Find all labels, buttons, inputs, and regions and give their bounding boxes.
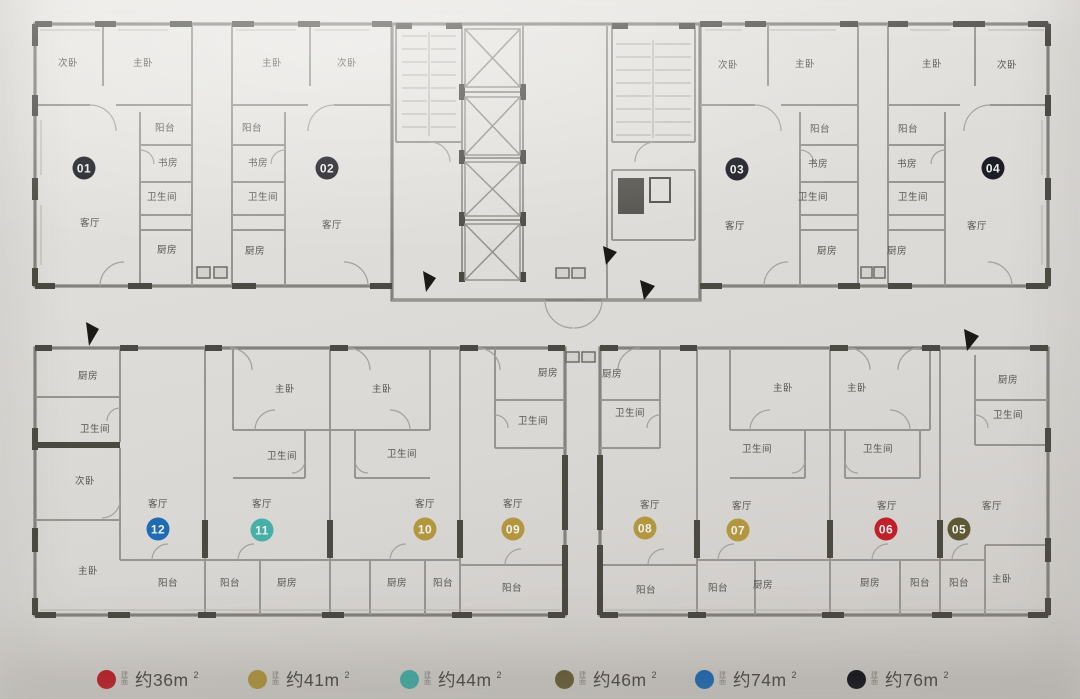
legend-dot [97, 670, 116, 689]
room-label: 次卧 [718, 57, 738, 71]
room-label: 卫生间 [798, 189, 828, 203]
unit-badge: 06 [875, 518, 898, 541]
room-label: 客厅 [252, 496, 272, 510]
legend-sup: 2 [944, 670, 949, 680]
room-label: 阳台 [155, 120, 175, 134]
room-label: 卫生间 [615, 405, 645, 419]
room-label: 阳台 [949, 575, 969, 589]
room-label: 阳台 [636, 582, 656, 596]
legend-item: 建面 约41m2 [248, 667, 350, 692]
legend-dot [555, 670, 574, 689]
room-label: 厨房 [157, 242, 177, 256]
room-label: 客厅 [415, 496, 435, 510]
room-label: 阳台 [910, 575, 930, 589]
legend-dot [400, 670, 419, 689]
room-label: 书房 [248, 155, 268, 169]
unit-badge: 12 [147, 518, 170, 541]
room-label: 次卧 [337, 55, 357, 69]
room-label: 主卧 [133, 55, 153, 69]
room-label: 客厅 [148, 496, 168, 510]
room-label: 客厅 [732, 498, 752, 512]
room-label: 阳台 [708, 580, 728, 594]
room-label: 阳台 [242, 120, 262, 134]
room-label: 主卧 [275, 381, 295, 395]
room-label: 厨房 [538, 365, 558, 379]
legend-item: 建面 约46m2 [555, 667, 657, 692]
room-label: 次卧 [997, 57, 1017, 71]
unit-badge: 02 [316, 157, 339, 180]
legend-item: 建面 约44m2 [400, 667, 502, 692]
room-label: 卫生间 [80, 421, 110, 435]
legend-sup: 2 [194, 670, 199, 680]
legend-sup: 2 [792, 670, 797, 680]
room-label: 卫生间 [993, 407, 1023, 421]
room-label: 书房 [808, 156, 828, 170]
room-label: 主卧 [372, 381, 392, 395]
legend-item: 建面 约74m2 [695, 667, 797, 692]
staircase-left [402, 32, 456, 136]
floorplan-drawing [0, 0, 1080, 699]
room-label: 阳台 [810, 121, 830, 135]
room-label: 厨房 [277, 575, 297, 589]
room-label: 厨房 [817, 243, 837, 257]
legend-area: 约41m [286, 667, 340, 692]
door-swings [90, 105, 1012, 565]
room-label: 厨房 [887, 243, 907, 257]
room-label: 厨房 [753, 577, 773, 591]
room-label: 客厅 [503, 496, 523, 510]
room-label: 客厅 [877, 498, 897, 512]
legend-item: 建面 约76m2 [847, 667, 949, 692]
unit-badge: 07 [727, 519, 750, 542]
room-label: 厨房 [860, 575, 880, 589]
legend-prefix: 建面 [121, 673, 130, 686]
legend-prefix: 建面 [424, 673, 433, 686]
room-label: 卫生间 [742, 441, 772, 455]
room-label: 阳台 [433, 575, 453, 589]
room-label: 主卧 [922, 56, 942, 70]
legend-prefix: 建面 [719, 673, 728, 686]
room-label: 卫生间 [387, 446, 417, 460]
room-label: 卫生间 [898, 189, 928, 203]
room-label: 厨房 [998, 372, 1018, 386]
room-label: 主卧 [78, 563, 98, 577]
legend-prefix: 建面 [871, 673, 880, 686]
room-label: 主卧 [773, 380, 793, 394]
room-label: 厨房 [602, 366, 622, 380]
legend-sup: 2 [497, 670, 502, 680]
room-label: 书房 [897, 156, 917, 170]
room-label: 主卧 [795, 56, 815, 70]
room-label: 厨房 [387, 575, 407, 589]
unit-badge: 03 [726, 158, 749, 181]
room-label: 卫生间 [863, 441, 893, 455]
legend-area: 约46m [593, 667, 647, 692]
unit-badge: 11 [251, 519, 274, 542]
room-label: 卫生间 [147, 189, 177, 203]
legend-item: 建面 约36m2 [97, 667, 199, 692]
elevator-shafts [465, 29, 520, 280]
room-label: 主卧 [847, 380, 867, 394]
room-label: 客厅 [322, 217, 342, 231]
room-label: 书房 [158, 155, 178, 169]
room-label: 阳台 [502, 580, 522, 594]
room-label: 客厅 [640, 497, 660, 511]
legend-dot [847, 670, 866, 689]
room-label: 阳台 [158, 575, 178, 589]
room-label: 次卧 [75, 473, 95, 487]
room-label: 厨房 [245, 243, 265, 257]
floorplan-photo: 次卧 主卧 阳台 书房 卫生间 客厅 厨房 主卧 次卧 阳台 书房 卫生间 客厅… [0, 0, 1080, 699]
staircase-right [616, 40, 691, 138]
unit-badge: 05 [948, 518, 971, 541]
room-label: 卫生间 [267, 448, 297, 462]
room-label: 客厅 [80, 215, 100, 229]
unit-badge: 09 [502, 518, 525, 541]
room-label: 阳台 [898, 121, 918, 135]
room-label: 卫生间 [518, 413, 548, 427]
legend-sup: 2 [345, 670, 350, 680]
unit-badge: 01 [73, 157, 96, 180]
machine-room [618, 178, 670, 214]
room-label: 阳台 [220, 575, 240, 589]
legend-area: 约36m [135, 667, 189, 692]
room-label: 次卧 [58, 55, 78, 69]
room-label: 主卧 [262, 55, 282, 69]
unit-badge: 04 [982, 157, 1005, 180]
legend-prefix: 建面 [272, 673, 281, 686]
room-label: 客厅 [967, 218, 987, 232]
legend-dot [695, 670, 714, 689]
legend-prefix: 建面 [579, 673, 588, 686]
legend-dot [248, 670, 267, 689]
room-label: 厨房 [78, 368, 98, 382]
legend-area: 约76m [885, 667, 939, 692]
legend-area: 约44m [438, 667, 492, 692]
room-label: 客厅 [725, 218, 745, 232]
room-label: 卫生间 [248, 189, 278, 203]
room-label: 主卧 [992, 571, 1012, 585]
room-label: 客厅 [982, 498, 1002, 512]
legend-sup: 2 [652, 670, 657, 680]
unit-badge: 10 [414, 518, 437, 541]
unit-badge: 08 [634, 517, 657, 540]
legend-area: 约74m [733, 667, 787, 692]
